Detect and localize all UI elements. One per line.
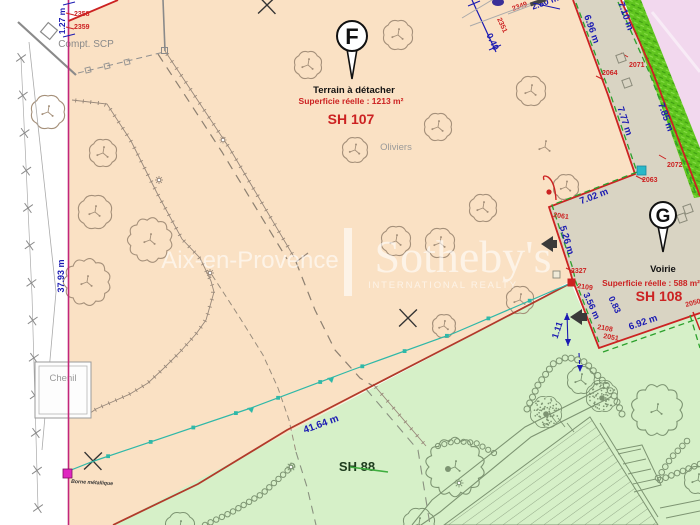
svg-text:2358: 2358 <box>74 11 90 18</box>
svg-text:SH 108: SH 108 <box>636 288 683 304</box>
svg-text:Compt. SCP: Compt. SCP <box>58 39 114 50</box>
svg-text:Aix-en-Provence: Aix-en-Provence <box>161 247 338 274</box>
svg-text:Terrain à détacher: Terrain à détacher <box>313 85 395 96</box>
svg-text:Sotheby's: Sotheby's <box>375 231 552 282</box>
svg-text:Superficie réelle : 588 m²: Superficie réelle : 588 m² <box>602 278 700 288</box>
svg-text:2072: 2072 <box>667 162 683 169</box>
svg-text:SH 107: SH 107 <box>328 111 375 127</box>
svg-text:37.93 m: 37.93 m <box>56 259 66 292</box>
svg-text:1.27 m: 1.27 m <box>57 7 67 34</box>
svg-text:F: F <box>345 24 358 49</box>
svg-text:2064: 2064 <box>602 70 618 77</box>
svg-text:Oliviers: Oliviers <box>380 142 412 153</box>
svg-text:2359: 2359 <box>74 24 90 31</box>
svg-text:G: G <box>656 206 671 227</box>
svg-text:Chenil: Chenil <box>50 373 77 384</box>
svg-text:INTERNATIONAL REALTY: INTERNATIONAL REALTY <box>368 280 518 291</box>
svg-text:2071: 2071 <box>629 62 645 69</box>
svg-text:2063: 2063 <box>642 177 658 184</box>
svg-text:Superficie réelle : 1213 m²: Superficie réelle : 1213 m² <box>299 96 404 106</box>
svg-text:SH 88: SH 88 <box>339 459 375 474</box>
svg-text:Voirie: Voirie <box>650 264 676 275</box>
